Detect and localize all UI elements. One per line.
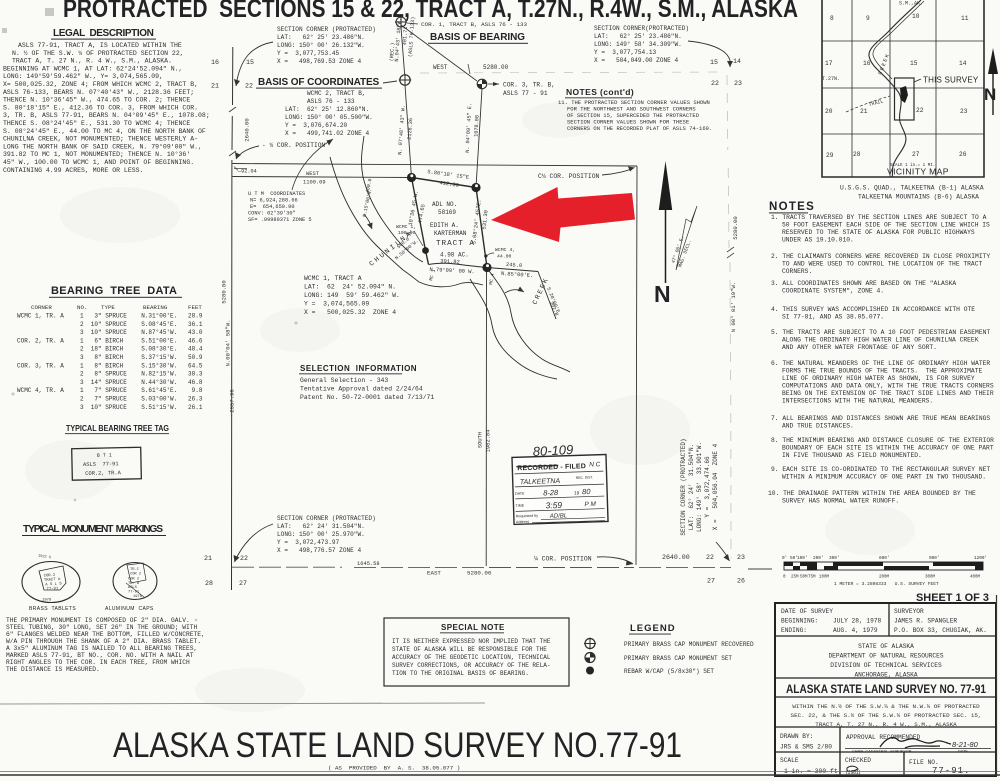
svg-text:ASLS 77 - 91: ASLS 77 - 91 — [503, 90, 548, 97]
svg-text:DATE: DATE — [515, 492, 525, 496]
svg-text:14: 14 — [733, 58, 741, 65]
svg-text:LAT: 62° 25' 23.486"N.: LAT: 62° 25' 23.486"N. — [277, 34, 365, 41]
svg-text:3:59: 3:59 — [545, 500, 562, 511]
svg-text:75M: 75M — [808, 576, 816, 580]
svg-text:15: 15 — [710, 59, 718, 66]
svg-text:X = 504,049.00 ZONE 4: X = 504,049.00 ZONE 4 — [594, 57, 678, 64]
svg-text:SELECTION INFORMATION: SELECTION INFORMATION — [300, 364, 417, 373]
svg-text:TION TO THE ORIGINAL BASIS OF: TION TO THE ORIGINAL BASIS OF BEARING. — [392, 670, 529, 677]
svg-text:TRACT A, T. 27 N., R. 4 W., S.: TRACT A, T. 27 N., R. 4 W., S.M., ALASKA — [815, 721, 957, 728]
svg-text:CORNERS.: CORNERS. — [782, 268, 812, 275]
svg-text:CHIEF CADASTRAL SURVEYOR: CHIEF CADASTRAL SURVEYOR — [852, 750, 912, 754]
svg-text:10. THE DRAINAGE PATTERN WITHI: 10. THE DRAINAGE PATTERN WITHIN THE AREA… — [768, 490, 976, 497]
svg-text:WITHIN THE N.½ OF THE S.W.¼ &: WITHIN THE N.½ OF THE S.W.¼ & THE N.W.¼ … — [792, 703, 980, 710]
svg-text:STATE OF ALASKA WILL BE RESPON: STATE OF ALASKA WILL BE RESPONSIBLE FOR … — [392, 646, 547, 653]
svg-text:391.82: 391.82 — [440, 258, 460, 265]
svg-text:5. THE TRACTS ARE SUBJECT TO A: 5. THE TRACTS ARE SUBJECT TO A 10 FOOT P… — [771, 329, 990, 336]
svg-text:ASLS 76-133, BEARS N. 07°40'43: ASLS 76-133, BEARS N. 07°40'43" W., 2128… — [3, 88, 194, 96]
svg-text:P.O. BOX 33, CHUGIAK, AK.: P.O. BOX 33, CHUGIAK, AK. — [894, 627, 987, 634]
svg-text:AND ANY OTHER WATER FRONTAGE O: AND ANY OTHER WATER FRONTAGE OF ANY SORT… — [782, 344, 937, 351]
svg-text:3 10" SPRUCE S.51°15'W.: 3 10" SPRUCE S.51°15'W. 26.1 — [80, 404, 203, 411]
svg-text:22: 22 — [711, 80, 719, 87]
svg-text:8. THE MINIMUM BEARING AND DIS: 8. THE MINIMUM BEARING AND DISTANCE CLOS… — [771, 437, 994, 444]
svg-text:U.S.G.S. QUAD., TALKEETNA (B-1: U.S.G.S. QUAD., TALKEETNA (B-1) ALASKA — [840, 185, 984, 192]
svg-text:VICINITY MAP: VICINITY MAP — [887, 167, 949, 177]
svg-text:CHUNILNA CREEK, NOT MONUMENTED: CHUNILNA CREEK, NOT MONUMENTED; THENCE W… — [3, 136, 198, 143]
svg-text:22: 22 — [245, 83, 253, 90]
svg-text:BOUNDARY OF EACH SITE IS WITHI: BOUNDARY OF EACH SITE IS WITHIN THE ACCU… — [782, 445, 994, 452]
svg-text:22: 22 — [706, 554, 714, 561]
svg-text:RIGHT ANGLES TO THE COR. IN EA: RIGHT ANGLES TO THE COR. IN EACH TREE, F… — [6, 659, 190, 666]
svg-text:COR. 3, TR. B,: COR. 3, TR. B, — [503, 82, 555, 89]
svg-text:DIVISION OF TECHNICAL SERVICES: DIVISION OF TECHNICAL SERVICES — [830, 662, 942, 669]
svg-text:COR.2, TR.A: COR.2, TR.A — [85, 470, 121, 477]
svg-text:16: 16 — [211, 59, 219, 66]
svg-text:JAMES R. SPANGLER: JAMES R. SPANGLER — [894, 618, 957, 625]
svg-text:21: 21 — [211, 83, 219, 90]
svg-text:REC. DIST.: REC. DIST. — [576, 475, 594, 480]
svg-text:21: 21 — [204, 555, 212, 562]
svg-text:15: 15 — [246, 59, 254, 66]
svg-text:AND TRUE DISTANCES.: AND TRUE DISTANCES. — [782, 423, 854, 430]
svg-text:0': 0' — [782, 556, 787, 561]
svg-text:COR. 3, TR. A: COR. 3, TR. A — [17, 362, 64, 369]
svg-text:ASLS 76 - 133: ASLS 76 - 133 — [307, 98, 355, 105]
svg-text:LONG THE NORTH BANK OF SAID CR: LONG THE NORTH BANK OF SAID CREEK, N. 79… — [3, 142, 202, 150]
svg-text:LONG: 149 59' 59.462" W.: LONG: 149 59' 59.462" W. — [304, 292, 400, 299]
svg-text:ASLS 77-91: ASLS 77-91 — [83, 461, 119, 468]
svg-text:THENCE S. 08°24'45" E., 531.30: THENCE S. 08°24'45" E., 531.30 TO WCMC 4… — [3, 119, 190, 127]
svg-text:5280.00: 5280.00 — [483, 64, 509, 71]
svg-text:2640.00: 2640.00 — [662, 554, 690, 561]
svg-text:WCMC 4,: WCMC 4, — [495, 247, 515, 253]
svg-text:3 14" SPRUCE N.44°30'W.: 3 14" SPRUCE N.44°30'W. 46.8 — [80, 379, 203, 386]
svg-text:SECTION CORNER(PROTRACTED): SECTION CORNER(PROTRACTED) — [594, 25, 689, 32]
svg-text:3. ALL COORDINATES SHOWN ARE B: 3. ALL COORDINATES SHOWN ARE BASED ON TH… — [771, 280, 956, 287]
svg-text:2 18" BIRCH S.08°30'E.: 2 18" BIRCH S.08°30'E. 48.4 — [80, 346, 203, 353]
svg-text:P M: P M — [584, 501, 596, 508]
svg-text:SCALE: SCALE — [780, 757, 799, 764]
svg-text:TYPE: TYPE — [101, 304, 115, 311]
svg-text:45" W., 100.00 TO WCMC 1, AND: 45" W., 100.00 TO WCMC 1, AND POINT OF B… — [3, 159, 194, 166]
svg-text:16: 16 — [863, 60, 871, 67]
svg-text:200': 200' — [813, 556, 824, 561]
svg-text:WCMC 4, TR. A: WCMC 4, TR. A — [17, 387, 64, 394]
svg-text:N.00°04' 58"W.: N.00°04' 58"W. — [225, 320, 232, 367]
svg-text:10: 10 — [912, 13, 920, 20]
svg-text:1 7" SPRUCE S.61°45'E.: 1 7" SPRUCE S.61°45'E. 9.8 — [80, 387, 203, 394]
svg-text:THE DISTANCE IS MEASURED.: THE DISTANCE IS MEASURED. — [6, 666, 100, 673]
svg-text:5280.00: 5280.00 — [467, 570, 492, 577]
svg-text:5280.00: 5280.00 — [221, 280, 228, 304]
svg-text:CHECKED: CHECKED — [845, 757, 871, 764]
svg-text:TIME: TIME — [515, 504, 524, 508]
svg-text:2557.96: 2557.96 — [229, 389, 236, 413]
svg-text:WCMC 1,: WCMC 1, — [396, 224, 416, 230]
svg-text:STATE OF ALASKA: STATE OF ALASKA — [858, 643, 914, 650]
svg-text:BEGINNING: JULY 28, 1978: BEGINNING: JULY 28, 1978 — [781, 618, 882, 625]
svg-text:44.00: 44.00 — [497, 254, 512, 260]
svg-text:X = 498,769.53 ZONE 4: X = 498,769.53 ZONE 4 — [277, 58, 361, 65]
svg-text:5280.00: 5280.00 — [732, 216, 739, 240]
svg-text:17: 17 — [825, 60, 833, 67]
svg-text:1 METER = 3.2808333 U.S. SUR: 1 METER = 3.2808333 U.S. SURVEY FEET — [834, 581, 939, 587]
svg-text:1978: 1978 — [133, 595, 142, 599]
svg-text:3 10" SPRUCE N.87°45'W.: 3 10" SPRUCE N.87°45'W. 43.0 — [80, 329, 203, 336]
svg-text:REBAR W/CAP (5/8x30") SET: REBAR W/CAP (5/8x30") SET — [624, 668, 714, 675]
svg-text:LONG: 150° 00' 26.132"W.: LONG: 150° 00' 26.132"W. — [277, 42, 365, 49]
svg-text:THE PRIMARY MONUMENT IS COMPOS: THE PRIMARY MONUMENT IS COMPOSED OF 2" D… — [6, 617, 190, 624]
svg-text:Y = 3,076,674.20: Y = 3,076,674.20 — [285, 122, 348, 129]
svg-text:1645.58: 1645.58 — [357, 561, 380, 567]
svg-text:WCMC 1, TRACT A: WCMC 1, TRACT A — [304, 275, 362, 282]
svg-text:CONV: 02°39'30": CONV: 02°39'30" — [248, 211, 296, 217]
svg-text:1982.84: 1982.84 — [486, 430, 492, 453]
svg-text:THIS SURVEY: THIS SURVEY — [923, 76, 979, 85]
svg-text:S. 08°24'45" E., 44.00 TO MC 4: S. 08°24'45" E., 44.00 TO MC 4, ON THE N… — [3, 127, 206, 135]
svg-text:19: 19 — [574, 490, 580, 495]
svg-text:¼ COR. POSITION: ¼ COR. POSITION — [534, 556, 592, 563]
svg-text:SECTION CORNER (PROTRACTED): SECTION CORNER (PROTRACTED) — [277, 26, 376, 33]
svg-text:CORNER: CORNER — [31, 304, 52, 311]
svg-text:LEGAL DESCRIPTION: LEGAL DESCRIPTION — [53, 28, 155, 39]
svg-text:LONG: 150° 00' 05.500"W.: LONG: 150° 00' 05.500"W. — [285, 114, 373, 121]
svg-text:PROTRACTED SECTIONS 15 & 22,: PROTRACTED SECTIONS 15 & 22, TRACT A, T.… — [63, 0, 798, 23]
svg-text:1200': 1200' — [974, 556, 987, 561]
svg-text:27: 27 — [239, 580, 247, 587]
svg-text:TYPICAL MONUMENT MARKINGS: TYPICAL MONUMENT MARKINGS — [23, 524, 164, 535]
svg-text:300': 300' — [829, 556, 840, 561]
svg-text:LAT: 62 24' 52.094" N.: LAT: 62 24' 52.094" N. — [304, 284, 396, 291]
svg-text:ANCHORAGE, ALASKA: ANCHORAGE, ALASKA — [854, 672, 917, 679]
svg-text:ASLS 77-91, TRACT A, IS LOCATE: ASLS 77-91, TRACT A, IS LOCATED WITHIN T… — [18, 42, 182, 49]
svg-text:100': 100' — [797, 556, 808, 561]
svg-text:UNDER AS 19.10.010.: UNDER AS 19.10.010. — [782, 237, 854, 244]
svg-text:400M: 400M — [970, 576, 981, 580]
svg-text:2 8" SPRUCE N.82°15'W.: 2 8" SPRUCE N.82°15'W. 38.3 — [80, 371, 203, 378]
svg-text:WEST: WEST — [306, 171, 320, 177]
svg-text:SPECIAL NOTE: SPECIAL NOTE — [441, 623, 505, 632]
svg-text:SECTION CORNER (PROTRACTED): SECTION CORNER (PROTRACTED) — [277, 515, 376, 522]
svg-text:21: 21 — [860, 108, 868, 115]
svg-text:LAT: 62° 24' 31.504"N.: LAT: 62° 24' 31.504"N. — [277, 523, 365, 530]
svg-text:A 3x5" ALUMINUM TAG IS NAILED: A 3x5" ALUMINUM TAG IS NAILED TO ALL BEA… — [6, 645, 197, 652]
svg-text:B T 1: B T 1 — [97, 452, 112, 458]
svg-text:1078.08: 1078.08 — [473, 115, 480, 137]
svg-text:THENCE N. 10°36'45" W., 474.65: THENCE N. 10°36'45" W., 474.65 TO COR. 2… — [3, 96, 190, 104]
svg-text:26: 26 — [737, 578, 745, 585]
svg-text:2. THE CLAIMANTS CORNERS WERE: 2. THE CLAIMANTS CORNERS WERE RECOVERED … — [771, 253, 990, 260]
svg-text:11: 11 — [961, 15, 969, 22]
svg-text:9: 9 — [866, 15, 870, 22]
svg-text:BASIS OF COORDINATES: BASIS OF COORDINATES — [258, 77, 380, 88]
svg-text:X = 504,056.04 ZONE 4: X = 504,056.04 ZONE 4 — [712, 443, 719, 530]
svg-text:( AS PROVIDED BY A. S. 38.: ( AS PROVIDED BY A. S. 38.05.077 ) — [328, 765, 460, 772]
svg-text:COR 2: COR 2 — [130, 572, 141, 576]
svg-text:T.27N.: T.27N. — [822, 76, 840, 82]
svg-text:SEC. 22, & THE S.½ OF THE S.W.: SEC. 22, & THE S.½ OF THE S.W.¼ OF PROTR… — [791, 712, 982, 719]
svg-text:25M: 25M — [791, 576, 799, 580]
svg-text:DEPARTMENT OF NATURAL RESOURCE: DEPARTMENT OF NATURAL RESOURCES — [828, 653, 943, 660]
svg-text:IN FIVE THOUSAND AS FIELD MONU: IN FIVE THOUSAND AS FIELD MONUMENTED. — [782, 452, 922, 459]
svg-text:—92.04: —92.04 — [237, 169, 257, 175]
svg-text:1 8" BIRCH S.15°30'W.: 1 8" BIRCH S.15°30'W. 64.5 — [80, 362, 203, 369]
svg-text:1978: 1978 — [42, 599, 52, 603]
svg-text:7. ALL BEARINGS AND DISTANCES: 7. ALL BEARINGS AND DISTANCES SHOWN ARE … — [771, 415, 990, 422]
svg-text:N: N — [654, 281, 671, 307]
svg-text:- ¼ COR. POSITION: - ¼ COR. POSITION — [262, 142, 325, 149]
svg-text:Requested by: Requested by — [516, 514, 538, 519]
svg-text:100M: 100M — [819, 576, 830, 580]
svg-text:X = 498,776.57 ZONE 4: X = 498,776.57 ZONE 4 — [277, 547, 361, 554]
svg-text:22: 22 — [240, 555, 248, 562]
svg-text:200M: 200M — [879, 576, 890, 580]
svg-text:MARKED ASLS 77-91, BT NO., COR: MARKED ASLS 77-91, BT NO., COR. NO. WITH… — [6, 652, 194, 659]
svg-text:WEST: WEST — [433, 64, 448, 71]
svg-text:S. 80°18'15" E., 412.36 TO COR: S. 80°18'15" E., 412.36 TO COR. 3, FROM … — [3, 103, 198, 111]
svg-text:8: 8 — [830, 15, 834, 22]
svg-text:TYPICAL BEARING TREE TAG: TYPICAL BEARING TREE TAG — [66, 424, 169, 433]
svg-text:TO AND WERE USED TO CONTROL TH: TO AND WERE USED TO CONTROL THE LOCATION… — [782, 261, 982, 268]
svg-text:1 6" BIRCH S.51°00'E.: 1 6" BIRCH S.51°00'E. 46.6 — [80, 337, 203, 344]
svg-text:RESERVED TO THE STATE OF ALASK: RESERVED TO THE STATE OF ALASKA FOR PUBL… — [782, 229, 975, 236]
svg-text:23: 23 — [734, 80, 742, 87]
svg-text:C¼ COR. POSITION: C¼ COR. POSITION — [538, 173, 600, 180]
svg-text:WITHIN A MINIMUM ACCURACY OF O: WITHIN A MINIMUM ACCURACY OF ONE PART IN… — [782, 474, 986, 481]
svg-text:245.0: 245.0 — [506, 262, 523, 269]
svg-text:JRS & SMS 2/80: JRS & SMS 2/80 — [780, 744, 832, 751]
svg-text:4.98 AC.: 4.98 AC. — [440, 252, 469, 259]
svg-text:CORNERS ON THE RECORDED PLAT O: CORNERS ON THE RECORDED PLAT OF ASLS 74-… — [567, 125, 712, 132]
svg-text:20: 20 — [825, 108, 833, 115]
svg-text:EDITH A.: EDITH A. — [430, 222, 459, 229]
svg-text:4. THIS SURVEY WAS ACCOMPLISHE: 4. THIS SURVEY WAS ACCOMPLISHED IN ACCOR… — [771, 306, 975, 313]
svg-text:SECTION CORNER (PROTRACTED): SECTION CORNER (PROTRACTED) — [680, 438, 687, 535]
svg-text:Y = 3,072,474.66: Y = 3,072,474.66 — [704, 456, 711, 518]
svg-text:LONG: 149° 58' 34.309"W.: LONG: 149° 58' 34.309"W. — [594, 41, 682, 48]
svg-text:ALUMINUM CAPS: ALUMINUM CAPS — [105, 606, 154, 612]
svg-text:28: 28 — [853, 151, 861, 158]
svg-text:6. THE NATURAL MEANDERS OF THE: 6. THE NATURAL MEANDERS OF THE LINE OF O… — [771, 360, 990, 367]
svg-text:TALKEETNA: TALKEETNA — [520, 478, 561, 486]
svg-text:1100.09: 1100.09 — [303, 180, 326, 186]
svg-text:LEGEND: LEGEND — [630, 623, 676, 634]
svg-text:X= 500,025.32, ZONE 4; FROM WH: X= 500,025.32, ZONE 4; FROM WHICH WCMC 2… — [3, 81, 198, 88]
svg-text:CONTAINING 4.99 ACRES, MORE OR: CONTAINING 4.99 ACRES, MORE OR LESS. — [3, 167, 143, 174]
svg-text:Y = 3,074,565.09: Y = 3,074,565.09 — [304, 301, 369, 308]
svg-text:IT IS NEITHER EXPRESSED NOR IM: IT IS NEITHER EXPRESSED NOR IMPLIED THAT… — [392, 638, 551, 645]
svg-text:LONG: 149°59'59.462" W., Y= 3,: LONG: 149°59'59.462" W., Y= 3,074,565.09… — [3, 72, 163, 80]
svg-text:LAT: 62° 24' 31.504"N.: LAT: 62° 24' 31.504"N. — [688, 444, 695, 530]
svg-text:ACCURACY OF THE GEODETIC LOCAT: ACCURACY OF THE GEODETIC LOCATION, TECHN… — [392, 654, 551, 661]
svg-text:LAT: 62° 25' 23.486"N.: LAT: 62° 25' 23.486"N. — [594, 33, 682, 40]
svg-text:N C: N C — [589, 461, 601, 468]
svg-text:DRAWN BY:: DRAWN BY: — [780, 733, 813, 740]
svg-text:LONG: 150° 00' 25.970"W.: LONG: 150° 00' 25.970"W. — [277, 531, 365, 538]
svg-text:N= 6,924,288.66: N= 6,924,288.66 — [250, 198, 298, 204]
svg-text:2640.00: 2640.00 — [244, 118, 251, 142]
svg-text:1. TRACTS TRAVERSED BY THE SEC: 1. TRACTS TRAVERSED BY THE SECTION LINES… — [771, 214, 987, 221]
svg-text:APPROVAL RECOMMENDED: APPROVAL RECOMMENDED — [846, 734, 921, 741]
svg-text:15: 15 — [910, 60, 918, 67]
svg-text:8-21-80: 8-21-80 — [952, 740, 979, 749]
svg-text:Y = 3,077,753.45: Y = 3,077,753.45 — [277, 50, 340, 57]
svg-text:23: 23 — [737, 554, 745, 561]
svg-text:Y = 3,077,754.13: Y = 3,077,754.13 — [594, 49, 657, 56]
svg-text:W/A PIN THROUGH THE SHANK OF A: W/A PIN THROUGH THE SHANK OF A 2" DIA. B… — [6, 638, 201, 645]
svg-text:2 7" SPRUCE S.03°00'W.: 2 7" SPRUCE S.03°00'W. 26.3 — [80, 396, 203, 403]
svg-text:General Selection - 343: General Selection - 343 — [300, 377, 388, 384]
svg-text:FEET: FEET — [188, 304, 202, 311]
svg-text:LINE OF ORDINARY HIGH WATER AS: LINE OF ORDINARY HIGH WATER AS SHOWN, IS… — [782, 375, 975, 382]
svg-text:3 8" BIRCH S.37°15'W.: 3 8" BIRCH S.37°15'W. 50.9 — [80, 354, 203, 361]
svg-text:Y = 3,072,473.97: Y = 3,072,473.97 — [277, 539, 340, 546]
svg-text:BRASS TABLETS: BRASS TABLETS — [29, 606, 76, 612]
svg-text:ALONG THE ORDINARY HIGH WATER: ALONG THE ORDINARY HIGH WATER LINE OF CH… — [782, 337, 979, 344]
svg-text:BASIS OF BEARING: BASIS OF BEARING — [430, 32, 526, 43]
svg-text:COORDINATE SYSTEM", ZONE 4.: COORDINATE SYSTEM", ZONE 4. — [782, 288, 884, 295]
svg-text:BEING ON THE EXTENSION OF THE: BEING ON THE EXTENSION OF THE TRACT SIDE… — [782, 390, 994, 397]
svg-text:SURVEY HAS NORMAL WATER RUNOFF: SURVEY HAS NORMAL WATER RUNOFF. — [782, 498, 899, 505]
svg-text:TRACT A, T. 27 N., R. 4 W., S.: TRACT A, T. 27 N., R. 4 W., S.M., ALASKA… — [12, 58, 172, 65]
svg-text:Patent No. 50-72-0001 dated 7/: Patent No. 50-72-0001 dated 7/13/71 — [300, 394, 434, 401]
svg-text:DATE: DATE — [958, 750, 968, 754]
svg-text:ALASKA STATE LAND SURVEY NO.77: ALASKA STATE LAND SURVEY NO.77-91 — [113, 726, 682, 765]
svg-text:COMPUTATIONS AND DATA ONLY, WI: COMPUTATIONS AND DATA ONLY, WITH THE TRU… — [782, 383, 994, 390]
svg-text:X = 499,741.02 ZONE 4: X = 499,741.02 ZONE 4 — [285, 130, 369, 137]
svg-text:29: 29 — [826, 152, 834, 159]
svg-text:BEARING: BEARING — [143, 304, 168, 311]
svg-text:N 00° 01' 19"W.: N 00° 01' 19"W. — [730, 282, 737, 332]
svg-text:WCMC 1, TR. A: WCMC 1, TR. A — [17, 313, 64, 320]
svg-text:600': 600' — [879, 556, 890, 561]
svg-text:BEGINNING AT WCMC 1, AT LAT: 6: BEGINNING AT WCMC 1, AT LAT: 62°24'52.09… — [3, 64, 182, 72]
svg-text:3, TR. B, ASLS 77-91, BEARS N.: 3, TR. B, ASLS 77-91, BEARS N. 04°09'45"… — [3, 111, 210, 119]
svg-text:DATE OF SURVEY: DATE OF SURVEY — [781, 608, 833, 615]
svg-text:50M: 50M — [800, 576, 808, 580]
svg-text:E= 654,650.90: E= 654,650.90 — [250, 204, 295, 210]
svg-text:EAST: EAST — [427, 570, 441, 577]
svg-text:SOUTH: SOUTH — [478, 432, 484, 448]
svg-text:FORMS THE TRUE BOUNDS OF THE T: FORMS THE TRUE BOUNDS OF THE TRACTS. THE… — [782, 368, 982, 375]
svg-text:58169: 58169 — [438, 209, 456, 216]
svg-text:NOTES: NOTES — [769, 201, 815, 213]
svg-text:28: 28 — [205, 580, 213, 587]
svg-text:PRIMARY BRASS CAP MONUMENT SET: PRIMARY BRASS CAP MONUMENT SET — [624, 655, 732, 662]
svg-text:27: 27 — [912, 151, 920, 158]
svg-text:WCMC 2, TRACT B,: WCMC 2, TRACT B, — [307, 90, 366, 97]
svg-text:900': 900' — [929, 556, 940, 561]
svg-text:ADL NO.: ADL NO. — [432, 201, 457, 208]
svg-text:Address: Address — [516, 520, 530, 524]
svg-text:N: N — [984, 85, 996, 104]
svg-text:TALKEETNA MOUNTAINS (B-6) ALAS: TALKEETNA MOUNTAINS (B-6) ALASKA — [858, 194, 979, 201]
svg-text:80: 80 — [582, 487, 591, 496]
svg-text:SF= .99989371 ZONE 5: SF= .99989371 ZONE 5 — [248, 217, 312, 223]
svg-text:14: 14 — [959, 60, 967, 67]
svg-text:391.82 TO MC 1, NOT MONUMENTED: 391.82 TO MC 1, NOT MONUMENTED; THENCE N… — [3, 150, 190, 158]
svg-text:LAT: 62° 25' 12.860"N.: LAT: 62° 25' 12.860"N. — [285, 106, 369, 113]
svg-text:LONG: 149° 58' 33.901"W.: LONG: 149° 58' 33.901"W. — [696, 442, 703, 532]
svg-text:300M: 300M — [925, 576, 936, 580]
svg-text:27: 27 — [707, 578, 715, 585]
svg-text:23: 23 — [960, 108, 968, 115]
svg-text:TRACT A: TRACT A — [436, 240, 475, 248]
svg-text:8-28: 8-28 — [543, 488, 559, 497]
svg-text:COR. 2, TR. A: COR. 2, TR. A — [17, 337, 64, 344]
svg-text:6" FLANGES WELDED NEAR THE BOT: 6" FLANGES WELDED NEAR THE BOTTOM, FILLE… — [6, 631, 205, 638]
svg-text:FILE NO.: FILE NO. — [909, 759, 939, 766]
svg-text:ALASKA STATE LAND SURVEY NO. 7: ALASKA STATE LAND SURVEY NO. 77-91 — [786, 682, 986, 696]
svg-text:SURVEY CORRECTIONS, OR ACCURAC: SURVEY CORRECTIONS, OR ACCURACY OF THE R… — [392, 662, 550, 669]
svg-text:COR. 1, TRACT B, ASLS 76 - 133: COR. 1, TRACT B, ASLS 76 - 133 — [421, 21, 528, 28]
svg-text:NO.: NO. — [77, 304, 87, 311]
svg-text:KARTERMAN: KARTERMAN — [434, 230, 467, 237]
svg-text:1 3" SPRUCE N.31°00'E.: 1 3" SPRUCE N.31°00'E. 28.9 — [80, 313, 203, 320]
svg-text:2 10" SPRUCE S.08°45'E.: 2 10" SPRUCE S.08°45'E. 36.1 — [80, 321, 203, 328]
svg-text:SI 77-81, AND AS 38.05.077.: SI 77-81, AND AS 38.05.077. — [782, 314, 884, 321]
svg-text:NOTES (cont'd): NOTES (cont'd) — [566, 87, 634, 97]
svg-text:X = 500,025.32 ZONE 4: X = 500,025.32 ZONE 4 — [304, 309, 396, 316]
svg-text:9. EACH SITE IS CO-ORDINATED T: 9. EACH SITE IS CO-ORDINATED TO THE RECT… — [771, 466, 990, 473]
svg-text:Tentative Approval dated 2/24/: Tentative Approval dated 2/24/64 — [300, 386, 423, 393]
svg-text:22: 22 — [916, 107, 924, 114]
svg-text:PRIMARY BRASS CAP MONUMENT REC: PRIMARY BRASS CAP MONUMENT RECOVERED — [624, 641, 754, 648]
svg-text:INTERSECTIONS WITH THE NATURAL: INTERSECTIONS WITH THE NATURAL MEANDERS. — [782, 398, 933, 405]
svg-text:N. ½ OF THE S.W. ¼ OF PROTRACT: N. ½ OF THE S.W. ¼ OF PROTRACTED SECTION… — [12, 49, 184, 57]
svg-text:50 FOOT EASEMENT EACH SIDE OF: 50 FOOT EASEMENT EACH SIDE OF THE SECTIO… — [782, 222, 990, 229]
svg-text:26: 26 — [959, 151, 967, 158]
svg-text:STEEL TUBING, 30" LONG, SET 26: STEEL TUBING, 30" LONG, SET 26" IN THE G… — [6, 624, 198, 631]
svg-text:U T M COORDINATES: U T M COORDINATES — [248, 191, 305, 197]
svg-text:SURVEYOR: SURVEYOR — [894, 608, 924, 615]
svg-text:ENDING: AUG. 4, 1979: ENDING: AUG. 4, 1979 — [781, 627, 878, 634]
svg-text:BEARING TREE DATA: BEARING TREE DATA — [51, 285, 179, 297]
